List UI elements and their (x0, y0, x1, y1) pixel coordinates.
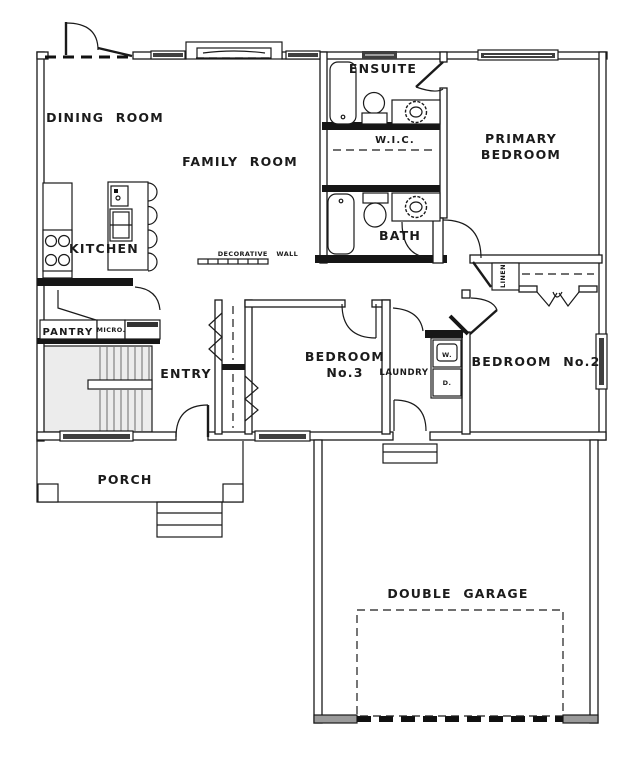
hall-stub-wall (433, 218, 443, 263)
primary-bedroom-label-line2: BEDROOM (481, 147, 561, 162)
wic-bath-wall (322, 185, 445, 192)
entry-label: ENTRY (160, 366, 212, 381)
stair-rail (88, 380, 152, 389)
garage-parking-outline (357, 610, 563, 716)
east-wall-upper (599, 52, 606, 337)
decorative-wall (198, 259, 268, 264)
family-window-2 (286, 51, 320, 59)
bedroom2-label: BEDROOM No.2 (471, 354, 600, 369)
dining-room-label: DINING ROOM (46, 110, 164, 125)
pantry-label: PANTRY (43, 327, 94, 338)
ensuite-toilet (362, 93, 387, 125)
front-door (176, 405, 208, 437)
bedroom3-window (255, 431, 310, 441)
linen-door (473, 262, 491, 287)
bedroom2-door (470, 298, 497, 334)
bedroom2-closet-bifold (537, 292, 579, 306)
double-garage-label: DOUBLE GARAGE (387, 586, 528, 601)
porch-post-right (223, 484, 243, 502)
ensuite-vanity (392, 100, 440, 124)
bath-fixtures (328, 193, 440, 254)
family-bath-wall (320, 52, 327, 263)
bath-label: BATH (379, 228, 421, 243)
garage-south-stub-left (314, 715, 357, 723)
bedroom3-label-line1: BEDROOM (305, 349, 385, 364)
stair-window (60, 431, 133, 441)
bedroom2-west-wall (462, 332, 470, 434)
linen-label: LINEN (499, 264, 507, 288)
kitchen-pantry-wall (37, 278, 133, 286)
kitchen-label: KITCHEN (69, 241, 139, 256)
primary-door (443, 220, 481, 258)
entry-closet-east-wall (245, 300, 252, 434)
ensuite-door (416, 62, 443, 91)
stove (43, 230, 72, 271)
ensuite-window (362, 51, 397, 59)
laundry-nook-wall (425, 330, 463, 338)
garage-walls (314, 440, 598, 723)
dryer-label: D. (443, 379, 452, 387)
garage-step (383, 444, 437, 463)
laundry-hall-door (393, 308, 423, 331)
laundry-label: LAUNDRY (379, 368, 428, 378)
dining-exterior-door (45, 22, 133, 57)
bedroom3-door (342, 304, 376, 338)
entry-closet-west-wall (215, 300, 222, 434)
washer-dryer (431, 338, 462, 398)
laundry-garage-door (394, 400, 426, 431)
bedroom3-laundry-wall (382, 300, 390, 434)
micro-label: MICRO. (97, 326, 126, 334)
garage-south-stub-right (563, 715, 598, 723)
ensuite-label: ENSUITE (349, 61, 417, 76)
dishwasher (110, 209, 132, 241)
family-bay-window (186, 42, 282, 59)
porch-label: PORCH (97, 472, 152, 487)
kitchen-island (108, 182, 157, 271)
primary-bedroom-label-line1: PRIMARY (485, 131, 557, 146)
staircase (40, 346, 152, 432)
bedroom3-north-wall (245, 300, 345, 307)
pantry-opening-arc (135, 287, 160, 310)
bedroom3-label-line2: No.3 (326, 365, 363, 380)
bath-toilet (363, 193, 388, 227)
dining-window (151, 51, 185, 59)
washer-label: W. (442, 351, 452, 359)
garage-east-wall (590, 440, 598, 723)
floor-plan-page: DINING ROOM FAMILY ROOM KITCHEN ENSUITE … (0, 0, 638, 768)
porch-steps (157, 502, 222, 537)
decorative-wall-label: DECORATIVE WALL (218, 250, 298, 258)
island-stools (148, 183, 157, 271)
porch-post-left (38, 484, 58, 502)
primary-west-wall (440, 88, 447, 218)
floor-plan-drawing: DINING ROOM FAMILY ROOM KITCHEN ENSUITE … (0, 0, 638, 768)
closet-divider (222, 364, 245, 370)
primary-south-wall (470, 255, 602, 263)
pantry-corner-counter (58, 290, 96, 320)
porch-structure (37, 441, 243, 537)
bath-vanity (392, 193, 440, 221)
family-room-label: FAMILY ROOM (182, 154, 298, 169)
wic-label: W.I.C. (375, 135, 415, 146)
island-sink (111, 186, 128, 206)
primary-window (478, 50, 558, 60)
bath-south-wall (315, 255, 447, 263)
garage-west-wall (314, 440, 322, 723)
